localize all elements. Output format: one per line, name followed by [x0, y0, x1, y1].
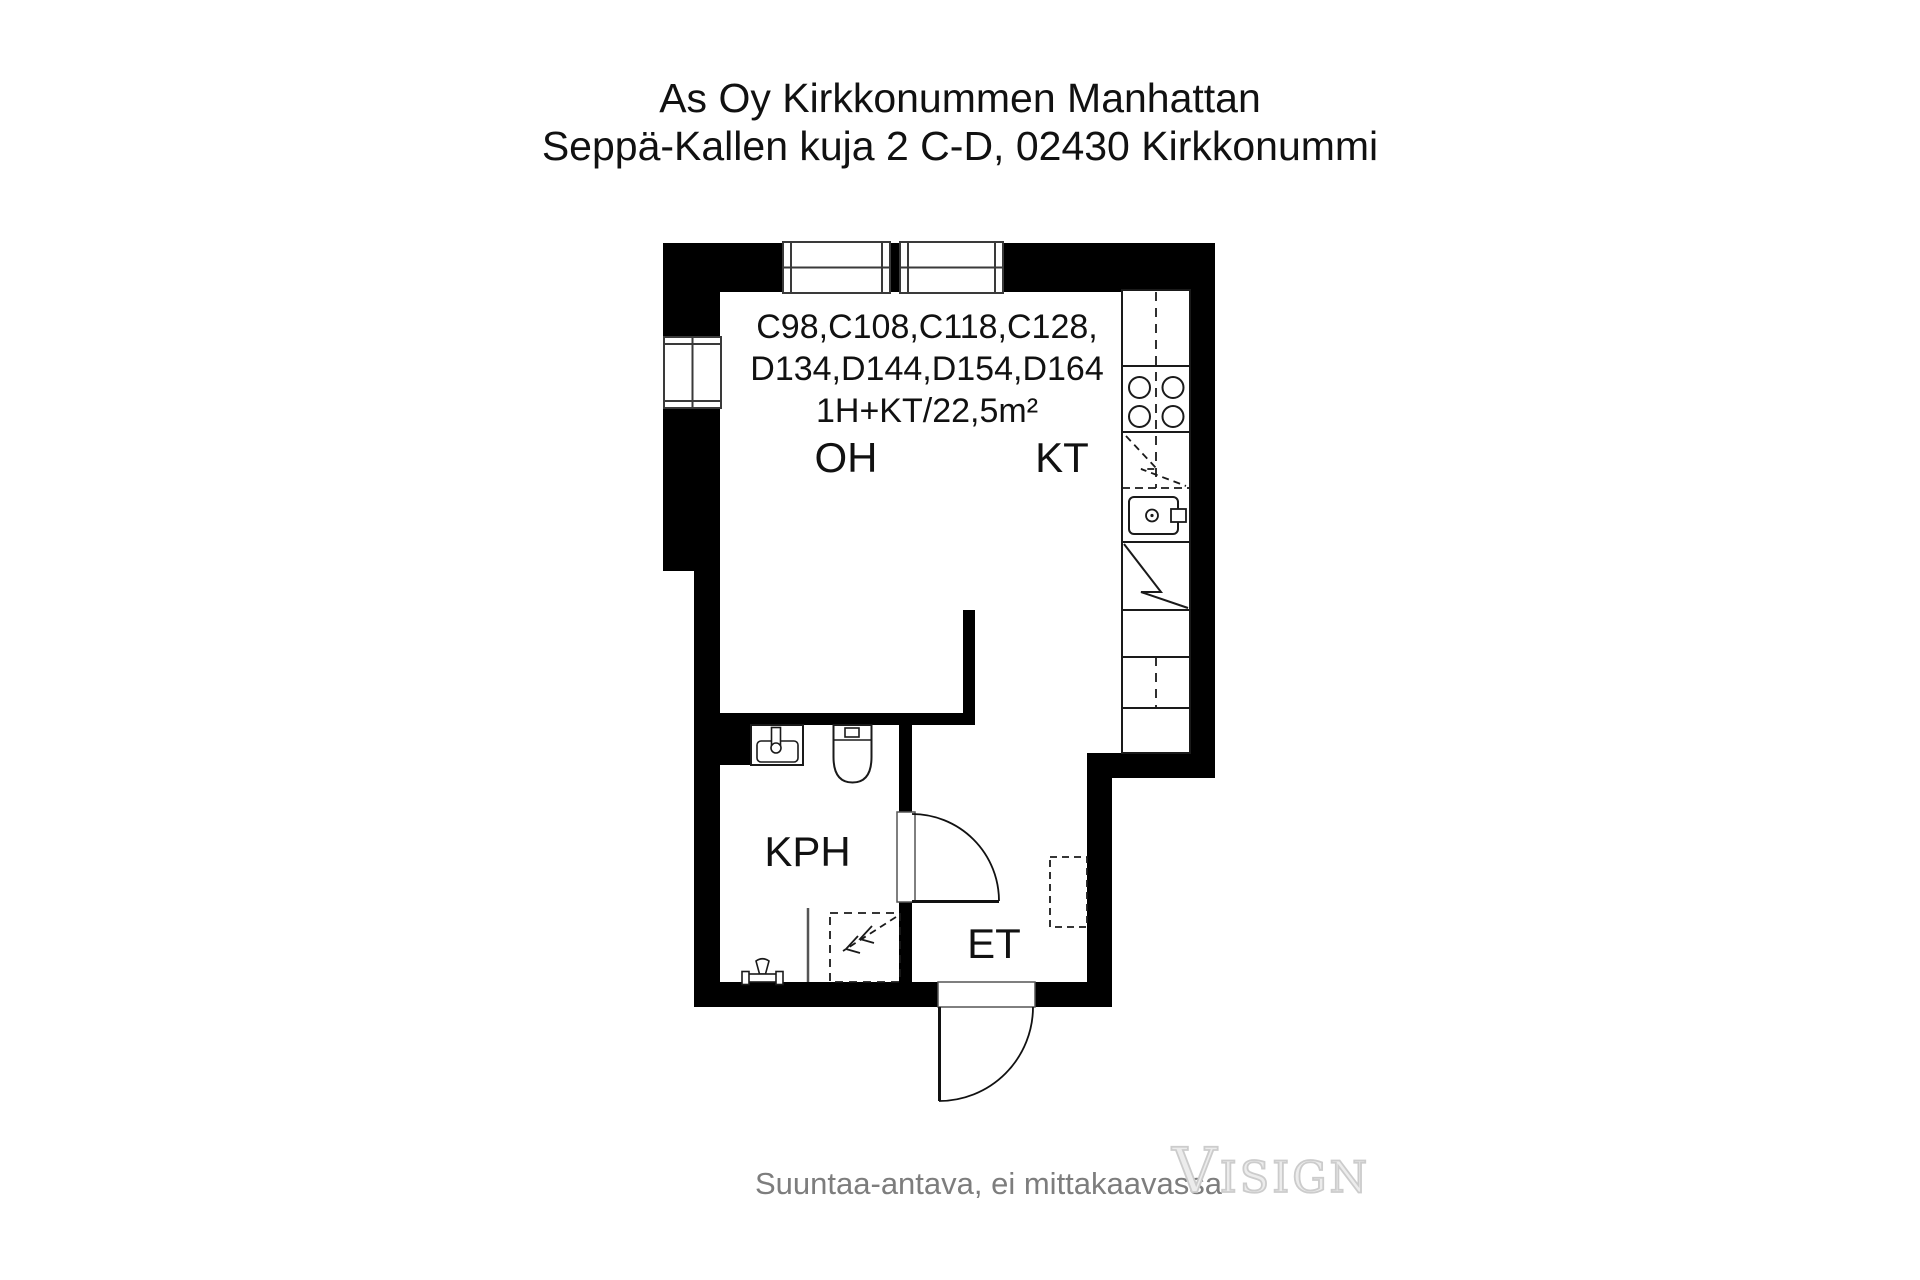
kph-door: [912, 814, 999, 902]
floorplan-page: As Oy Kirkkonummen Manhattan Seppä-Kalle…: [0, 0, 1920, 1280]
entry-door: [939, 1007, 1033, 1101]
unit-info: C98,C108,C118,C128, D134,D144,D154,D164 …: [707, 306, 1147, 432]
entry-door-threshold: [938, 982, 1035, 1007]
page-title: As Oy Kirkkonummen Manhattan Seppä-Kalle…: [0, 74, 1920, 170]
building-address: Seppä-Kallen kuja 2 C-D, 02430 Kirkkonum…: [0, 122, 1920, 170]
wall-top-right: [1003, 243, 1215, 292]
unit-numbers-line2: D134,D144,D154,D164: [707, 348, 1147, 390]
room-label-living: OH: [790, 434, 902, 482]
wall-stub: [963, 610, 975, 725]
shower-area: [808, 908, 900, 982]
wall-right: [1190, 292, 1215, 778]
wall-top-mullion: [890, 243, 900, 292]
wall-left-lower: [694, 571, 720, 1007]
disclaimer-text: Suuntaa-antava, ei mittakaavassa: [755, 1166, 1222, 1202]
window-top-right: [900, 242, 1003, 293]
building-name: As Oy Kirkkonummen Manhattan: [0, 74, 1920, 122]
room-label-kitchen: KT: [1006, 434, 1118, 482]
wall-et-right: [1087, 753, 1112, 1007]
wall-plumbing-chase: [720, 713, 751, 765]
room-label-bathroom: KPH: [745, 828, 870, 876]
room-label-entry: ET: [944, 920, 1044, 968]
toilet: [834, 725, 872, 783]
wall-bottom-left: [694, 982, 938, 1007]
unit-type-area: 1H+KT/22,5m²: [707, 390, 1147, 432]
wardrobe-reservation: [1050, 857, 1087, 927]
wall-left-mid: [663, 408, 720, 571]
floor-drain: [742, 959, 783, 985]
door-openings: [897, 812, 1035, 1007]
wall-kph-right-lower: [899, 902, 912, 982]
wall-top-left: [663, 243, 783, 292]
kitchen-sink: [1129, 497, 1186, 534]
unit-numbers-line1: C98,C108,C118,C128,: [707, 306, 1147, 348]
bathroom-sink: [751, 725, 803, 765]
floorplan-drawing: [0, 0, 1920, 1280]
kph-door-opening: [897, 812, 915, 902]
wall-bottom-right: [1035, 982, 1112, 1007]
window-top-left: [783, 242, 890, 293]
visign-logo: Visign: [1172, 1134, 1370, 1207]
wall-kph-right-upper: [899, 725, 912, 812]
